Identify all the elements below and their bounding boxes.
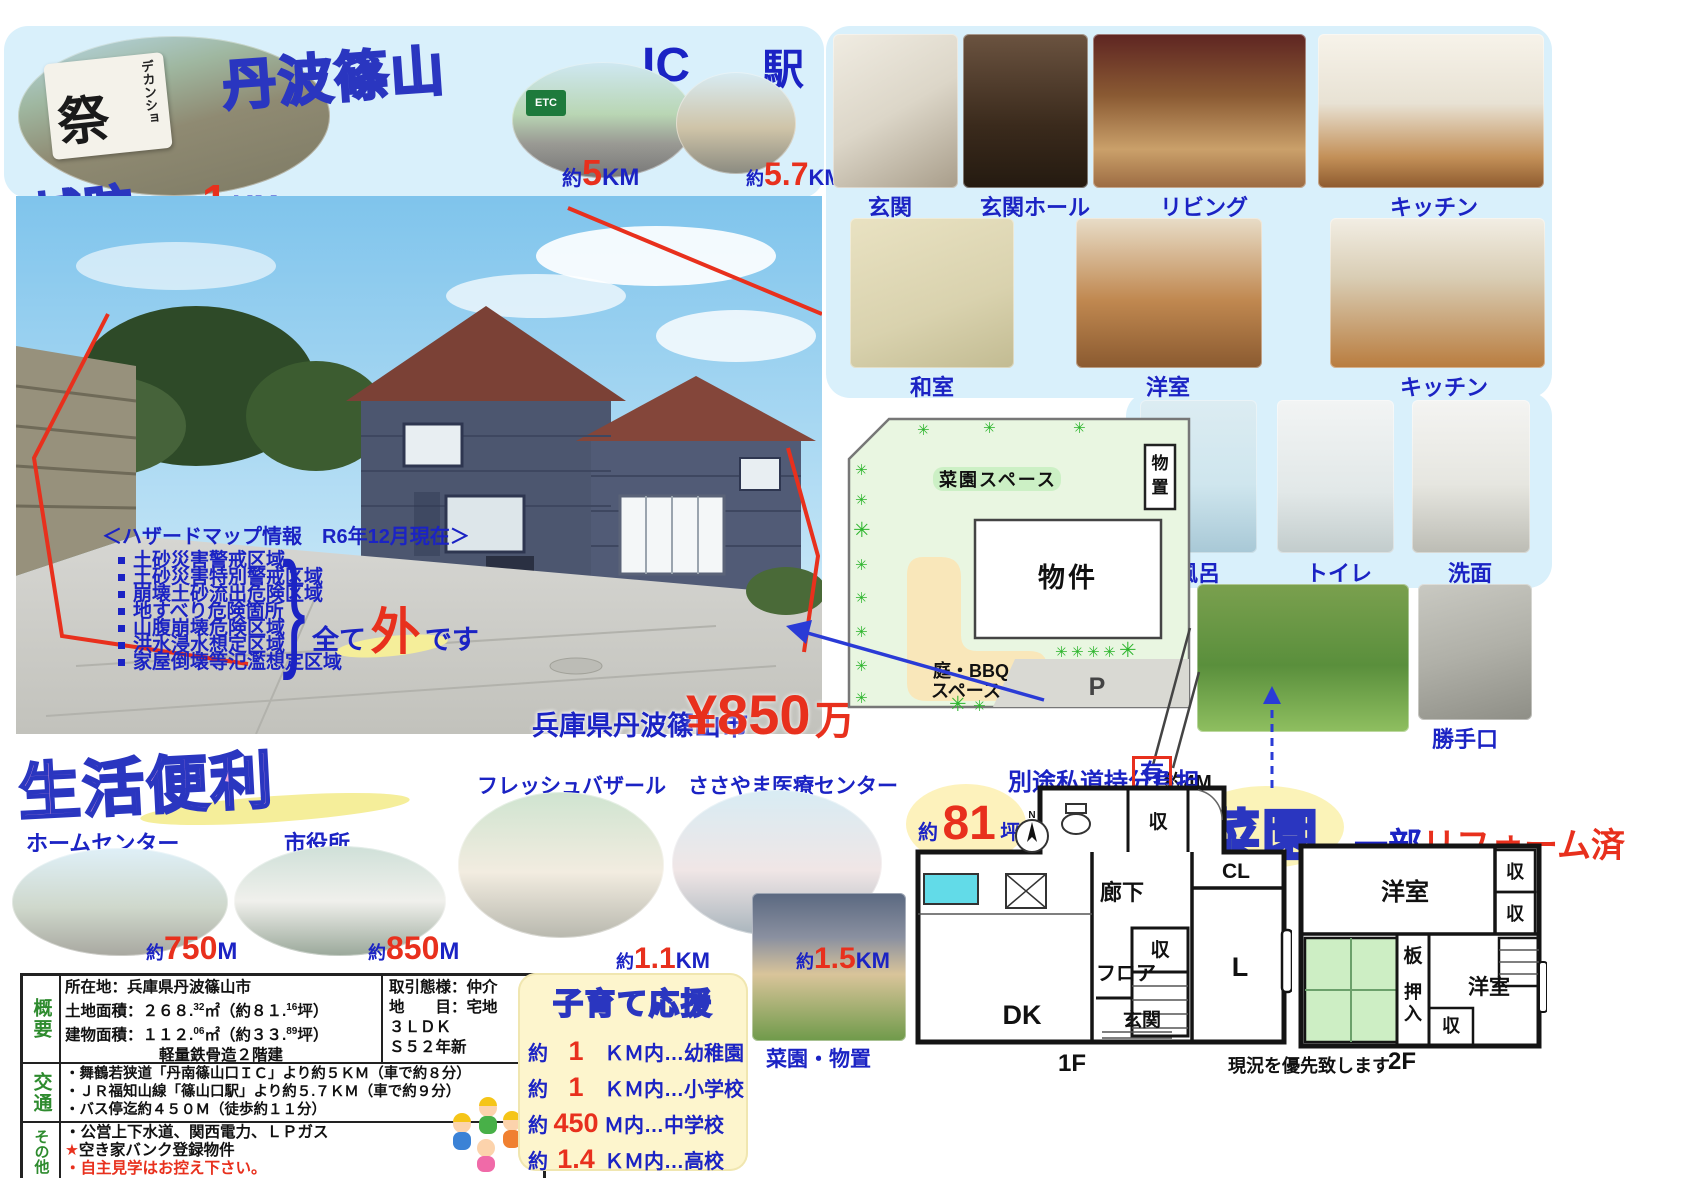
floor-label-1f: 1F bbox=[1058, 1050, 1086, 1078]
ic-distance-prefix: 約 bbox=[562, 162, 582, 191]
medical-distance: 約 1.5 KM bbox=[796, 942, 890, 976]
kosodate-item: 約1.4ＫＭ内…高校 bbox=[528, 1144, 748, 1175]
flyer-page: デカンショ 祭 丹波篠山 城跡 へ約 1 KM IC ETC 約 5 KM 駅 … bbox=[0, 0, 1686, 1178]
ic-distance-unit: KM bbox=[602, 164, 639, 192]
room-oshiire-1: 押 bbox=[1404, 981, 1422, 1002]
tree-icon: ✳ bbox=[855, 492, 868, 509]
ic-distance-value: 5 bbox=[582, 152, 602, 194]
photo-kitchen bbox=[1318, 34, 1544, 188]
room-rouka: 廊下 bbox=[1100, 880, 1144, 905]
room-shu1: 収 bbox=[1506, 862, 1525, 882]
room-yoshitsu-btm: 洋室 bbox=[1468, 975, 1510, 999]
bullet-icon bbox=[118, 608, 125, 615]
spec-header-other: その他 bbox=[23, 1123, 61, 1178]
festival-banner: デカンショ 祭 bbox=[43, 52, 172, 160]
room-shu-mid: 収 bbox=[1150, 939, 1170, 961]
compass-n: N bbox=[1028, 810, 1035, 821]
room-genkan: 玄関 bbox=[1123, 1008, 1161, 1031]
photo-genkan-hall bbox=[963, 34, 1088, 188]
hazard-item: 家屋倒壊等氾濫想定区域 bbox=[118, 654, 342, 671]
saien-arrow bbox=[1260, 686, 1284, 792]
hazard-list: 土砂災害警戒区域 土砂災害特別警戒区域 崩壊土砂流出危険区域 地すべり危険箇所 … bbox=[118, 552, 342, 671]
photo-genkan bbox=[833, 34, 958, 188]
hazard-brace: } bbox=[282, 548, 306, 668]
room-shu-top: 収 bbox=[1148, 811, 1168, 833]
spec-header-transport: 交通 bbox=[23, 1064, 61, 1121]
shed-label-2: 置 bbox=[1152, 478, 1169, 497]
room-yoshitsu-top: 洋室 bbox=[1381, 878, 1429, 906]
tree-icon: ✳ bbox=[855, 462, 868, 479]
tree-icon: ✳ bbox=[1073, 420, 1086, 437]
bullet-icon bbox=[118, 659, 125, 666]
kosodate-title: 子育て応援 bbox=[518, 979, 748, 1023]
tree-icon: ✳ bbox=[1071, 644, 1084, 661]
home-center-distance: 約 750 M bbox=[146, 930, 237, 967]
tree-icon: ✳ bbox=[1119, 639, 1137, 662]
ic-distance: 約 5 KM bbox=[562, 152, 639, 194]
room-shu2: 収 bbox=[1506, 904, 1525, 924]
tree-icon: ✳ bbox=[855, 590, 868, 607]
room-living: L bbox=[1232, 952, 1249, 982]
bullet-icon bbox=[118, 591, 125, 598]
tree-icon: ✳ bbox=[983, 420, 996, 437]
spec-land-use: 地 目：宅地 bbox=[389, 998, 537, 1018]
area-name-bubble: 丹波篠山 bbox=[220, 26, 449, 120]
garden-space-label: 菜園スペース bbox=[938, 470, 1057, 490]
bullet-icon bbox=[118, 625, 125, 632]
bullet-icon bbox=[118, 557, 125, 564]
photo-label: 和室 bbox=[910, 370, 954, 402]
bazar-photo bbox=[458, 792, 664, 938]
room-dk: DK bbox=[1003, 1000, 1042, 1030]
room-cl: CL bbox=[1222, 860, 1250, 883]
children-illustration bbox=[448, 1086, 528, 1172]
room-floor: フロア bbox=[1096, 963, 1156, 985]
tree-icon: ✳ bbox=[855, 557, 868, 574]
bullet-icon bbox=[118, 574, 125, 581]
site-arrow bbox=[782, 612, 1048, 707]
tree-icon: ✳ bbox=[917, 422, 930, 439]
bazar-distance: 約 1.1 KM bbox=[616, 942, 710, 976]
floor-plan-note: 現況を優先致します bbox=[1228, 1052, 1390, 1078]
photo-toilet bbox=[1277, 400, 1394, 553]
kosodate-item: 約1ＫＭ内…幼稚園 bbox=[528, 1036, 748, 1067]
room-shu3: 収 bbox=[1442, 1016, 1461, 1036]
tree-icon: ✳ bbox=[1055, 644, 1068, 661]
tree-icon: ✳ bbox=[853, 519, 871, 542]
spec-deal: 取引態様：仲介 bbox=[389, 978, 537, 998]
spec-land-area: 土地面積：２６８.32㎡（約８１.16坪） bbox=[65, 998, 377, 1022]
station-distance: 約 5.7 KM bbox=[746, 156, 843, 193]
spec-built-year: Ｓ５２年新 bbox=[389, 1038, 537, 1058]
festival-banner-small-text: デカンショ bbox=[136, 59, 162, 126]
photo-label-back-door: 勝手口 bbox=[1432, 722, 1498, 754]
road-sketch bbox=[1145, 620, 1203, 770]
tree-icon: ✳ bbox=[1103, 644, 1116, 661]
photo-garden bbox=[1197, 584, 1409, 732]
photo-back-door bbox=[1418, 584, 1532, 720]
photo-washbasin bbox=[1412, 400, 1530, 553]
floor-label-2f: 2F bbox=[1388, 1048, 1416, 1076]
building-label: 物件 bbox=[1038, 563, 1098, 593]
station-distance-value: 5.7 bbox=[764, 156, 808, 193]
star-icon: ★ bbox=[65, 1142, 79, 1159]
life-convenience-bubble: 生活便利 bbox=[16, 729, 276, 832]
floor-plan-1f: N 収 廊下 CL 収 DK フロア 玄関 L bbox=[910, 780, 1292, 1052]
spec-building-area: 建物面積：１１２.06㎡（約３３.89坪） bbox=[65, 1022, 377, 1046]
photo-label-garden-shed: 菜園・物置 bbox=[766, 1043, 871, 1073]
photo-label: キッチン bbox=[1400, 370, 1488, 402]
photo-label: 洋室 bbox=[1146, 370, 1190, 402]
transport-line: ・舞鶴若狭道「丹南篠山口ＩＣ」より約５ＫＭ（車で約８分） bbox=[65, 1065, 539, 1083]
hazard-result-emphasis: 外 bbox=[370, 604, 420, 660]
spec-row-overview: 概要 所在地：兵庫県丹波篠山市 土地面積：２６８.32㎡（約８１.16坪） 建物… bbox=[23, 976, 543, 1064]
tree-icon: ✳ bbox=[1087, 644, 1100, 661]
spec-location: 所在地：兵庫県丹波篠山市 bbox=[65, 978, 377, 998]
etc-sign: ETC bbox=[526, 90, 566, 116]
kosodate-item: 約1ＫＭ内…小学校 bbox=[528, 1072, 748, 1103]
photo-kitchen2 bbox=[1330, 218, 1545, 368]
kosodate-panel: 子育て応援 約1ＫＭ内…幼稚園 約1ＫＭ内…小学校 約450Ｍ内…中学校 約1.… bbox=[518, 973, 748, 1171]
photo-washitsu bbox=[850, 218, 1014, 368]
spec-header-overview: 概要 bbox=[23, 976, 61, 1062]
festival-banner-big-text: 祭 bbox=[53, 76, 113, 156]
hazard-result: 全て 外 です bbox=[312, 592, 479, 664]
room-ita: 板 bbox=[1403, 944, 1423, 967]
room-oshiire-2: 入 bbox=[1404, 1004, 1422, 1024]
kosodate-item: 約450Ｍ内…中学校 bbox=[528, 1108, 748, 1139]
city-hall-distance: 約 850 M bbox=[368, 930, 459, 967]
photo-living bbox=[1093, 34, 1306, 188]
bullet-icon bbox=[118, 642, 125, 649]
shed-label-1: 物 bbox=[1152, 453, 1169, 473]
station-distance-prefix: 約 bbox=[746, 165, 764, 191]
floor-plan-2f: 洋室 収 収 板 押 入 洋室 収 bbox=[1293, 782, 1547, 1054]
spec-layout: ３ＬＤＫ bbox=[389, 1018, 537, 1038]
parking-label: P bbox=[1089, 673, 1106, 701]
photo-yoshitsu bbox=[1076, 218, 1262, 368]
spec-overview-left: 所在地：兵庫県丹波篠山市 土地面積：２６８.32㎡（約８１.16坪） 建物面積：… bbox=[61, 976, 381, 1062]
